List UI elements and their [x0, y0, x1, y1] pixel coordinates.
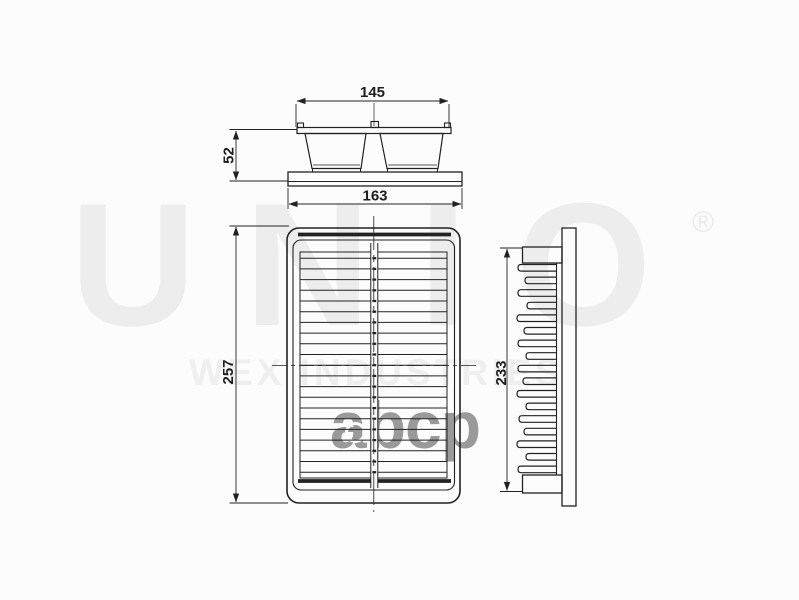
view-side [500, 228, 576, 506]
filter-pocket [380, 134, 443, 169]
view-top [230, 216, 477, 512]
pleat-fold [517, 441, 557, 448]
base-flange [288, 172, 462, 186]
view-front-section [230, 101, 463, 209]
pleat-comb [517, 265, 557, 473]
pleat-fold [526, 403, 557, 410]
dim-width-top-label: 145 [360, 84, 385, 101]
pleat-fold [525, 277, 557, 284]
pleat-fold [526, 353, 557, 360]
pleat-fold [518, 466, 557, 473]
pleat-fold [519, 416, 557, 423]
dim-length-label: 257 [220, 359, 237, 384]
rim-tab [371, 122, 379, 128]
pleat-fold [518, 265, 557, 272]
pleat-fold [518, 365, 557, 372]
air-filter-technical-drawing: UNIO ® WEX INDUSTRIES abcp [0, 0, 799, 600]
pleat-fold [524, 328, 557, 335]
pleat-fold [517, 391, 557, 398]
drawing-svg: 145 52 163 257 [0, 0, 799, 600]
filter-pocket [305, 134, 366, 169]
pleat-end-cap [523, 475, 563, 493]
dim-height-label: 52 [221, 147, 238, 164]
pleat-fold [517, 315, 557, 322]
rim-tab [298, 123, 304, 128]
pleat-fold [526, 454, 557, 461]
base-panel [562, 228, 576, 506]
pleat-fold [523, 378, 557, 385]
pleat-end-cap [523, 247, 563, 263]
pleat-fold [518, 290, 557, 297]
rim-tab [445, 123, 451, 128]
pleat-fold [518, 340, 557, 347]
dim-width-base-label: 163 [362, 188, 387, 205]
dim-length-label: 233 [493, 360, 510, 385]
pleat-fold [524, 428, 557, 435]
pleat-fold [527, 302, 557, 309]
filter-rim [297, 128, 451, 134]
